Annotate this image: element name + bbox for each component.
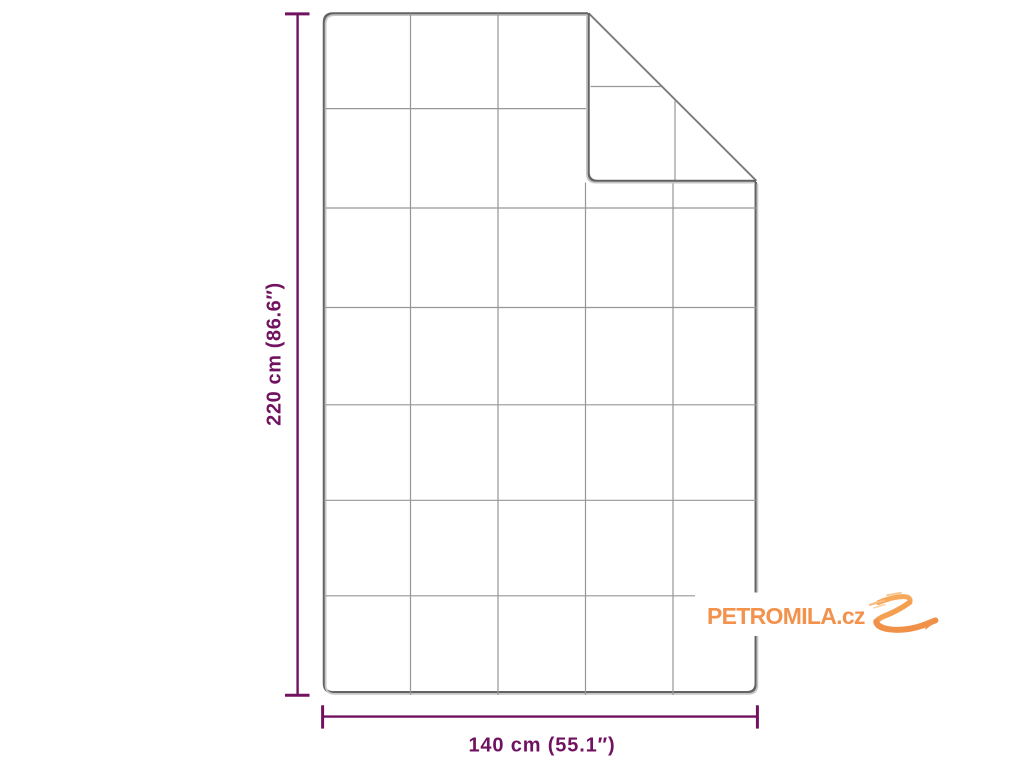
- svg-text:140 cm (55.1″): 140 cm (55.1″): [468, 735, 615, 757]
- svg-text:220 cm (86.6″): 220 cm (86.6″): [264, 282, 286, 426]
- svg-text:PETROMILA.cz: PETROMILA.cz: [707, 603, 865, 629]
